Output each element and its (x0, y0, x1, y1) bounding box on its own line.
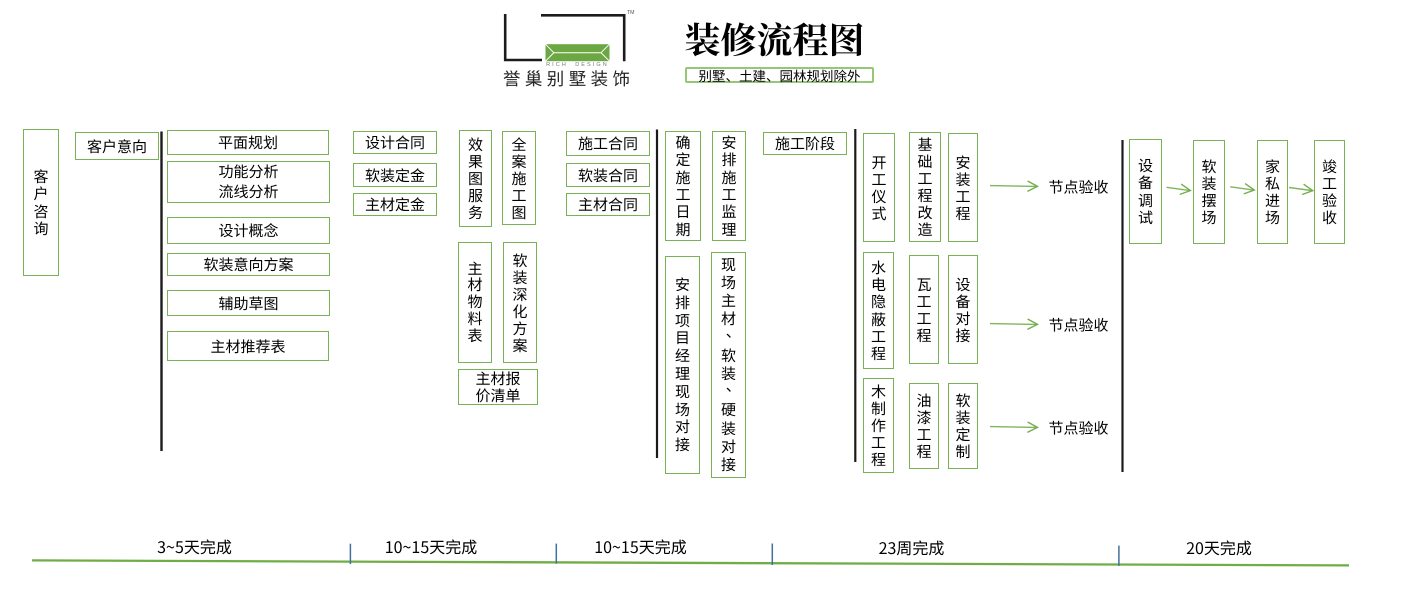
svg-text:TM: TM (627, 10, 635, 16)
